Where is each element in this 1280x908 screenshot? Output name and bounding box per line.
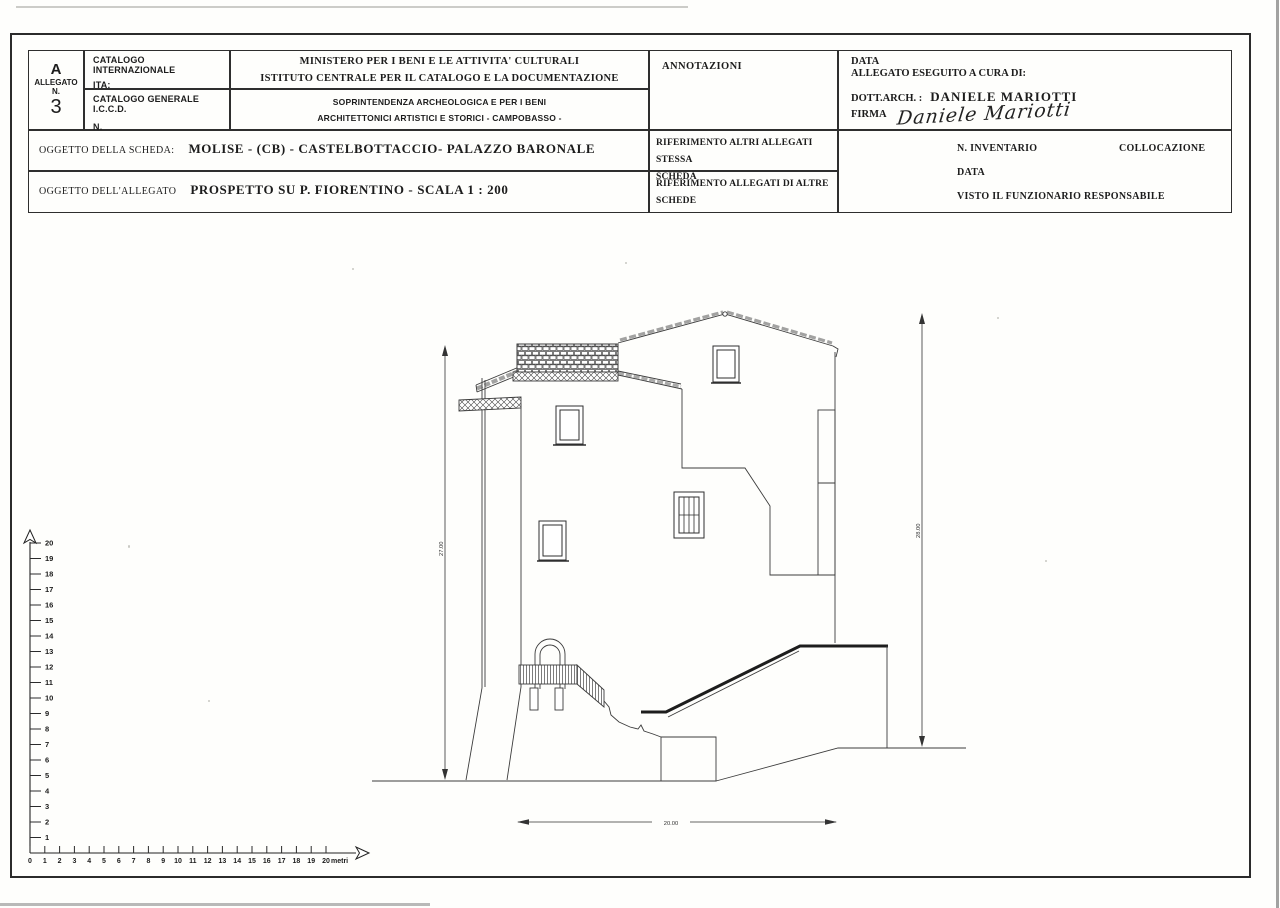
svg-text:20: 20 bbox=[45, 539, 53, 548]
horizontal-scale-ruler: 01234567891011121314151617181920 metri bbox=[28, 846, 369, 865]
svg-text:9: 9 bbox=[161, 858, 165, 865]
svg-text:8: 8 bbox=[146, 858, 150, 865]
svg-text:17: 17 bbox=[278, 858, 286, 865]
vertical-ruler-ticks: 1234567891011121314151617181920 bbox=[30, 539, 54, 843]
vertical-scale-ruler: 1234567891011121314151617181920 bbox=[24, 530, 54, 853]
svg-text:1: 1 bbox=[45, 833, 49, 842]
balcony-hatched-strip bbox=[459, 397, 521, 411]
svg-text:1: 1 bbox=[43, 858, 47, 865]
svg-text:7: 7 bbox=[132, 858, 136, 865]
svg-text:13: 13 bbox=[45, 647, 53, 656]
dim-bottom-value: 20.00 bbox=[664, 821, 679, 827]
svg-text:18: 18 bbox=[293, 858, 301, 865]
svg-text:15: 15 bbox=[248, 858, 256, 865]
ramp-parapet bbox=[641, 646, 888, 748]
dimension-right: 28.00 bbox=[916, 313, 925, 747]
svg-text:9: 9 bbox=[45, 709, 49, 718]
elevation-drawing: 27.00 28.00 20.00 1234567891011121314151… bbox=[0, 0, 1280, 908]
svg-text:10: 10 bbox=[45, 694, 53, 703]
svg-text:3: 3 bbox=[72, 858, 76, 865]
svg-text:16: 16 bbox=[263, 858, 271, 865]
ruler-unit-label: metri bbox=[331, 858, 348, 865]
scan-edge-right bbox=[1276, 0, 1279, 908]
horizontal-ruler-ticks: 01234567891011121314151617181920 bbox=[28, 846, 330, 865]
stair-railing-descending bbox=[577, 665, 604, 707]
window-lower-left bbox=[537, 521, 569, 561]
svg-text:5: 5 bbox=[45, 771, 49, 780]
svg-text:13: 13 bbox=[219, 858, 227, 865]
horizontal-ruler-arrow bbox=[356, 847, 369, 859]
dimension-left: 27.00 bbox=[439, 345, 448, 780]
svg-text:8: 8 bbox=[45, 725, 49, 734]
main-walls bbox=[604, 352, 835, 737]
window-upper-left bbox=[553, 406, 586, 445]
svg-text:12: 12 bbox=[204, 858, 212, 865]
svg-text:4: 4 bbox=[45, 787, 50, 796]
dim-right-value: 28.00 bbox=[916, 523, 922, 538]
svg-text:11: 11 bbox=[45, 678, 53, 687]
svg-text:18: 18 bbox=[45, 570, 53, 579]
svg-text:0: 0 bbox=[28, 858, 32, 865]
svg-text:6: 6 bbox=[117, 858, 121, 865]
scan-streak-top bbox=[16, 6, 688, 8]
svg-text:3: 3 bbox=[45, 802, 49, 811]
svg-text:14: 14 bbox=[233, 858, 241, 865]
svg-text:6: 6 bbox=[45, 756, 49, 765]
svg-text:16: 16 bbox=[45, 601, 53, 610]
portal-and-stairs bbox=[519, 639, 604, 710]
svg-text:4: 4 bbox=[87, 858, 91, 865]
svg-text:2: 2 bbox=[58, 858, 62, 865]
svg-text:15: 15 bbox=[45, 616, 53, 625]
left-wing bbox=[459, 367, 521, 780]
svg-text:19: 19 bbox=[45, 554, 53, 563]
vertical-ruler-arrow bbox=[24, 530, 36, 543]
svg-text:2: 2 bbox=[45, 818, 49, 827]
dim-left-value: 27.00 bbox=[439, 541, 445, 556]
svg-text:10: 10 bbox=[174, 858, 182, 865]
svg-text:12: 12 bbox=[45, 663, 53, 672]
window-top-right bbox=[711, 346, 741, 383]
tiled-parapet bbox=[513, 344, 618, 381]
svg-text:7: 7 bbox=[45, 740, 49, 749]
svg-text:14: 14 bbox=[45, 632, 54, 641]
svg-text:19: 19 bbox=[307, 858, 315, 865]
svg-text:17: 17 bbox=[45, 585, 53, 594]
svg-text:11: 11 bbox=[189, 858, 197, 865]
window-gridded bbox=[674, 492, 704, 538]
svg-text:20: 20 bbox=[322, 858, 330, 865]
scan-streak-bottom bbox=[0, 903, 430, 906]
chimney-strip bbox=[818, 410, 835, 575]
roof-peak-finial bbox=[723, 312, 727, 316]
railing-hatched bbox=[519, 665, 577, 684]
dimension-bottom: 20.00 bbox=[517, 819, 837, 827]
scanned-catalog-sheet: A ALLEGATO N. 3 CATALOGO INTERNAZIONALE … bbox=[0, 0, 1280, 908]
svg-text:5: 5 bbox=[102, 858, 106, 865]
ground-lines bbox=[372, 737, 966, 781]
